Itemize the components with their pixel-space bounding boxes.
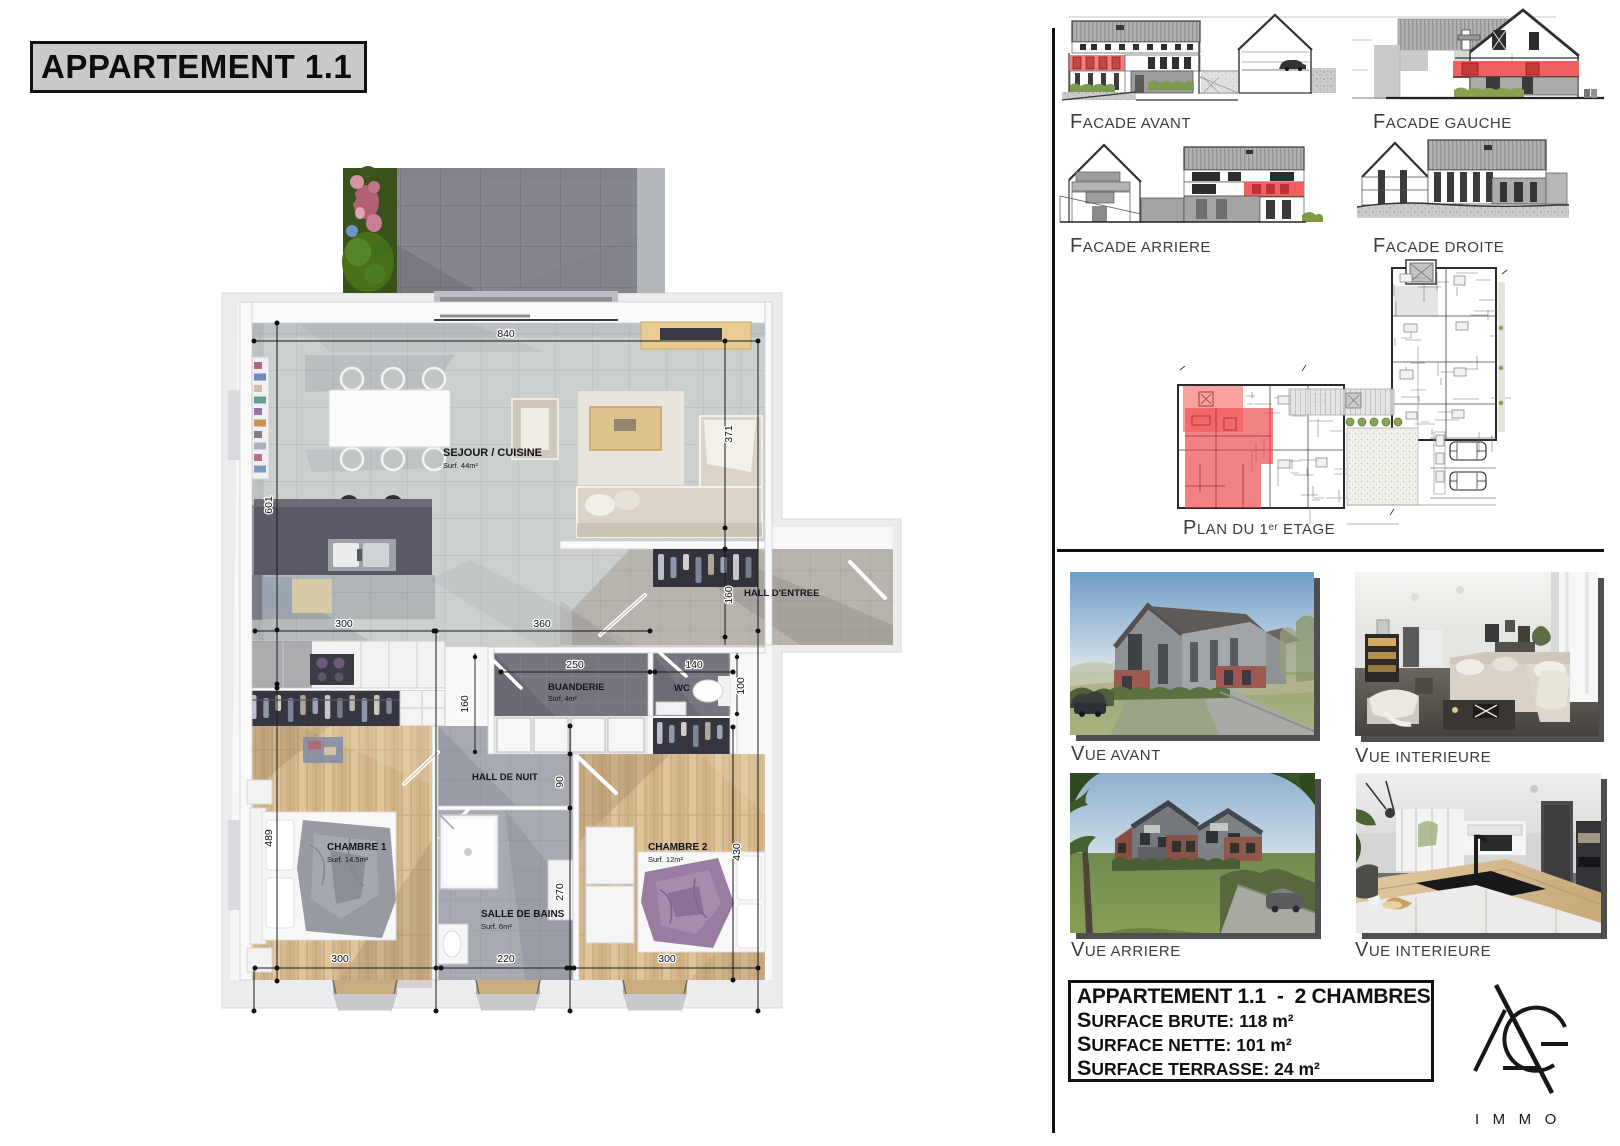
svg-text:840: 840 — [497, 328, 515, 340]
svg-text:HALL D'ENTREE: HALL D'ENTREE — [744, 588, 819, 599]
svg-text:140: 140 — [685, 659, 703, 671]
svg-text:160: 160 — [723, 586, 735, 604]
svg-text:360: 360 — [533, 618, 551, 630]
svg-text:160: 160 — [459, 695, 471, 713]
svg-text:CHAMBRE 1: CHAMBRE 1 — [327, 842, 387, 853]
svg-text:WC: WC — [674, 683, 690, 694]
svg-text:Surf. 44m²: Surf. 44m² — [443, 461, 479, 470]
svg-text:90: 90 — [554, 776, 566, 788]
svg-text:100: 100 — [735, 677, 747, 695]
svg-text:Surf. 12m²: Surf. 12m² — [648, 855, 684, 864]
svg-text:300: 300 — [331, 953, 349, 965]
svg-text:601: 601 — [263, 496, 275, 514]
svg-text:430: 430 — [731, 843, 743, 861]
svg-text:Surf. 4m²: Surf. 4m² — [548, 696, 577, 703]
svg-text:HALL DE NUIT: HALL DE NUIT — [472, 772, 538, 783]
svg-text:300: 300 — [658, 953, 676, 965]
svg-text:270: 270 — [554, 883, 566, 901]
svg-text:220: 220 — [497, 953, 515, 965]
svg-text:BUANDERIE: BUANDERIE — [548, 682, 604, 693]
svg-text:300: 300 — [335, 618, 353, 630]
svg-text:Surf. 6m²: Surf. 6m² — [481, 922, 512, 931]
svg-text:CHAMBRE 2: CHAMBRE 2 — [648, 842, 708, 853]
svg-text:Surf. 14.5m²: Surf. 14.5m² — [327, 855, 369, 864]
svg-text:489: 489 — [263, 829, 275, 847]
svg-text:IMMO: IMMO — [1475, 1111, 1570, 1128]
svg-text:371: 371 — [723, 425, 735, 443]
svg-text:250: 250 — [566, 659, 584, 671]
svg-text:SALLE DE BAINS: SALLE DE BAINS — [481, 909, 565, 920]
svg-text:SEJOUR / CUISINE: SEJOUR / CUISINE — [443, 447, 542, 459]
